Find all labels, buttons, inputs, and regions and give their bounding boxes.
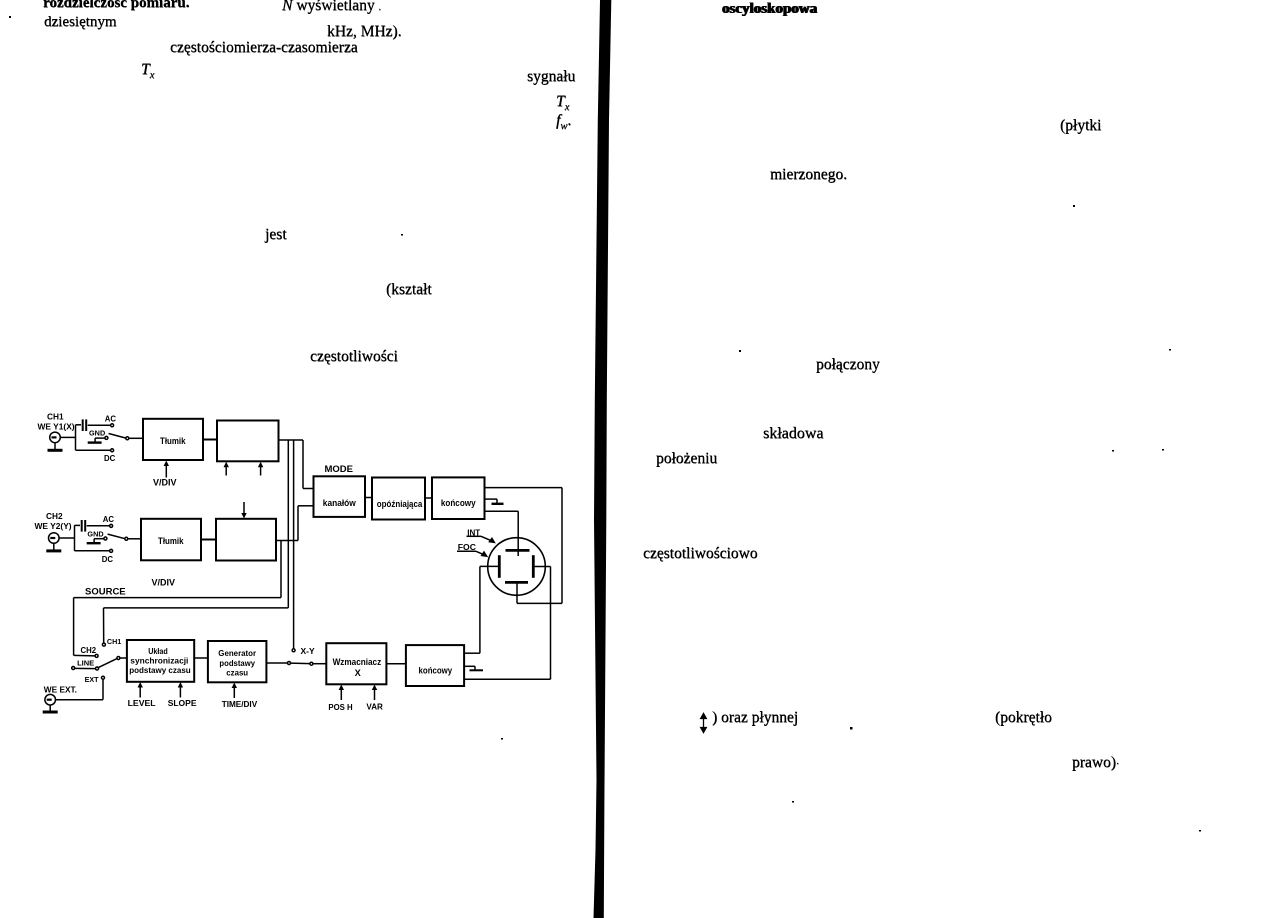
svg-text:podstawy: podstawy — [219, 658, 255, 668]
svg-text:kanałów: kanałów — [323, 497, 357, 508]
svg-text:Generator: Generator — [218, 648, 256, 658]
svg-text:synchronizacji: synchronizacji — [130, 657, 188, 666]
svg-text:X-Y: X-Y — [301, 646, 316, 656]
svg-text:AC: AC — [103, 515, 115, 524]
svg-text:V/DIV: V/DIV — [153, 477, 177, 487]
svg-text:POS H: POS H — [328, 703, 353, 712]
svg-text:X: X — [355, 668, 362, 678]
svg-text:Układ: Układ — [148, 647, 168, 656]
svg-text:GND: GND — [87, 529, 103, 538]
svg-text:SOURCE: SOURCE — [85, 587, 126, 598]
svg-text:opóźniająca: opóźniająca — [377, 499, 423, 509]
svg-text:czasu: czasu — [226, 667, 248, 677]
svg-text:Tłumik: Tłumik — [158, 535, 184, 546]
svg-text:AC: AC — [105, 414, 117, 423]
svg-text:końcowy: końcowy — [441, 497, 476, 508]
svg-text:VAR: VAR — [366, 703, 383, 712]
svg-text:WE Y2(Y): WE Y2(Y) — [35, 521, 72, 531]
svg-text:CH2: CH2 — [46, 511, 63, 521]
svg-text:końcowy: końcowy — [419, 664, 453, 675]
svg-text:LINE: LINE — [77, 659, 94, 668]
svg-text:CH1: CH1 — [107, 637, 121, 646]
svg-text:DC: DC — [104, 454, 116, 463]
svg-text:CH1: CH1 — [47, 412, 64, 422]
svg-text:Wzmacniacz: Wzmacniacz — [333, 657, 382, 667]
svg-text:WE EXT.: WE EXT. — [44, 685, 77, 695]
svg-text:CH2: CH2 — [81, 646, 97, 655]
svg-text:DC: DC — [102, 555, 114, 564]
svg-text:TIME/DIV: TIME/DIV — [222, 700, 258, 709]
svg-text:SLOPE: SLOPE — [168, 698, 197, 708]
svg-text:podstawy czasu: podstawy czasu — [129, 666, 191, 675]
svg-text:LEVEL: LEVEL — [128, 698, 157, 708]
svg-text:Tłumik: Tłumik — [160, 435, 186, 446]
svg-text:MODE: MODE — [325, 464, 354, 475]
svg-text:EXT: EXT — [85, 675, 100, 684]
svg-text:WE Y1(X): WE Y1(X) — [38, 421, 75, 431]
svg-text:FOC: FOC — [458, 542, 476, 552]
svg-text:V/DIV: V/DIV — [152, 578, 176, 588]
svg-text:GND: GND — [89, 429, 105, 438]
